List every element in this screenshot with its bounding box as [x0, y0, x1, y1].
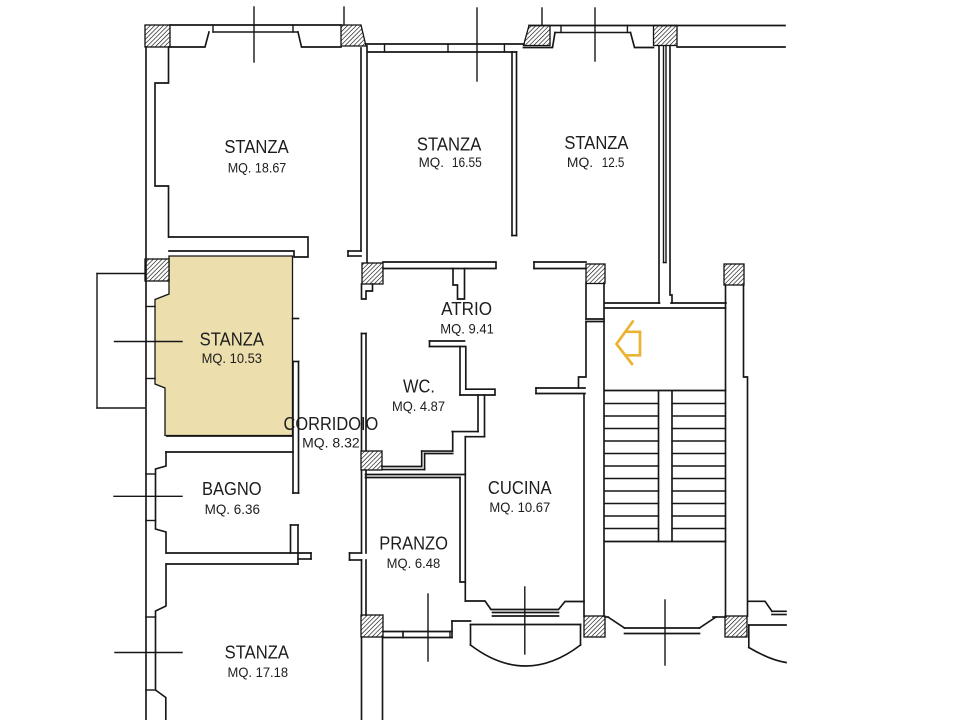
svg-text:WC.: WC.: [403, 377, 435, 397]
svg-text:MQ. 4.87: MQ. 4.87: [392, 399, 445, 414]
svg-text:STANZA: STANZA: [225, 643, 289, 663]
svg-text:16.55: 16.55: [452, 155, 482, 170]
svg-text:MQ. 6.48: MQ. 6.48: [387, 556, 441, 571]
svg-text:CORRIDOIO: CORRIDOIO: [284, 414, 379, 434]
svg-text:MQ. 18.67: MQ. 18.67: [228, 160, 287, 175]
svg-text:PRANZO: PRANZO: [379, 534, 448, 554]
svg-text:MQ. 9.41: MQ. 9.41: [440, 322, 494, 337]
svg-text:MQ.: MQ.: [567, 155, 593, 170]
svg-text:BAGNO: BAGNO: [202, 479, 262, 499]
svg-text:MQ. 10.53: MQ. 10.53: [202, 351, 263, 366]
svg-text:STANZA: STANZA: [224, 137, 288, 157]
svg-text:ATRIO: ATRIO: [441, 299, 492, 319]
svg-text:STANZA: STANZA: [417, 134, 481, 154]
svg-text:MQ. 6.36: MQ. 6.36: [205, 502, 261, 517]
svg-text:MQ. 10.67: MQ. 10.67: [489, 500, 550, 515]
svg-text:12.5: 12.5: [602, 155, 625, 170]
svg-text:STANZA: STANZA: [564, 133, 628, 153]
svg-text:MQ. 8.32: MQ. 8.32: [302, 436, 360, 451]
svg-text:MQ. 17.18: MQ. 17.18: [228, 665, 289, 680]
svg-text:STANZA: STANZA: [200, 330, 264, 350]
svg-text:MQ.: MQ.: [419, 155, 444, 170]
svg-text:CUCINA: CUCINA: [488, 478, 552, 498]
